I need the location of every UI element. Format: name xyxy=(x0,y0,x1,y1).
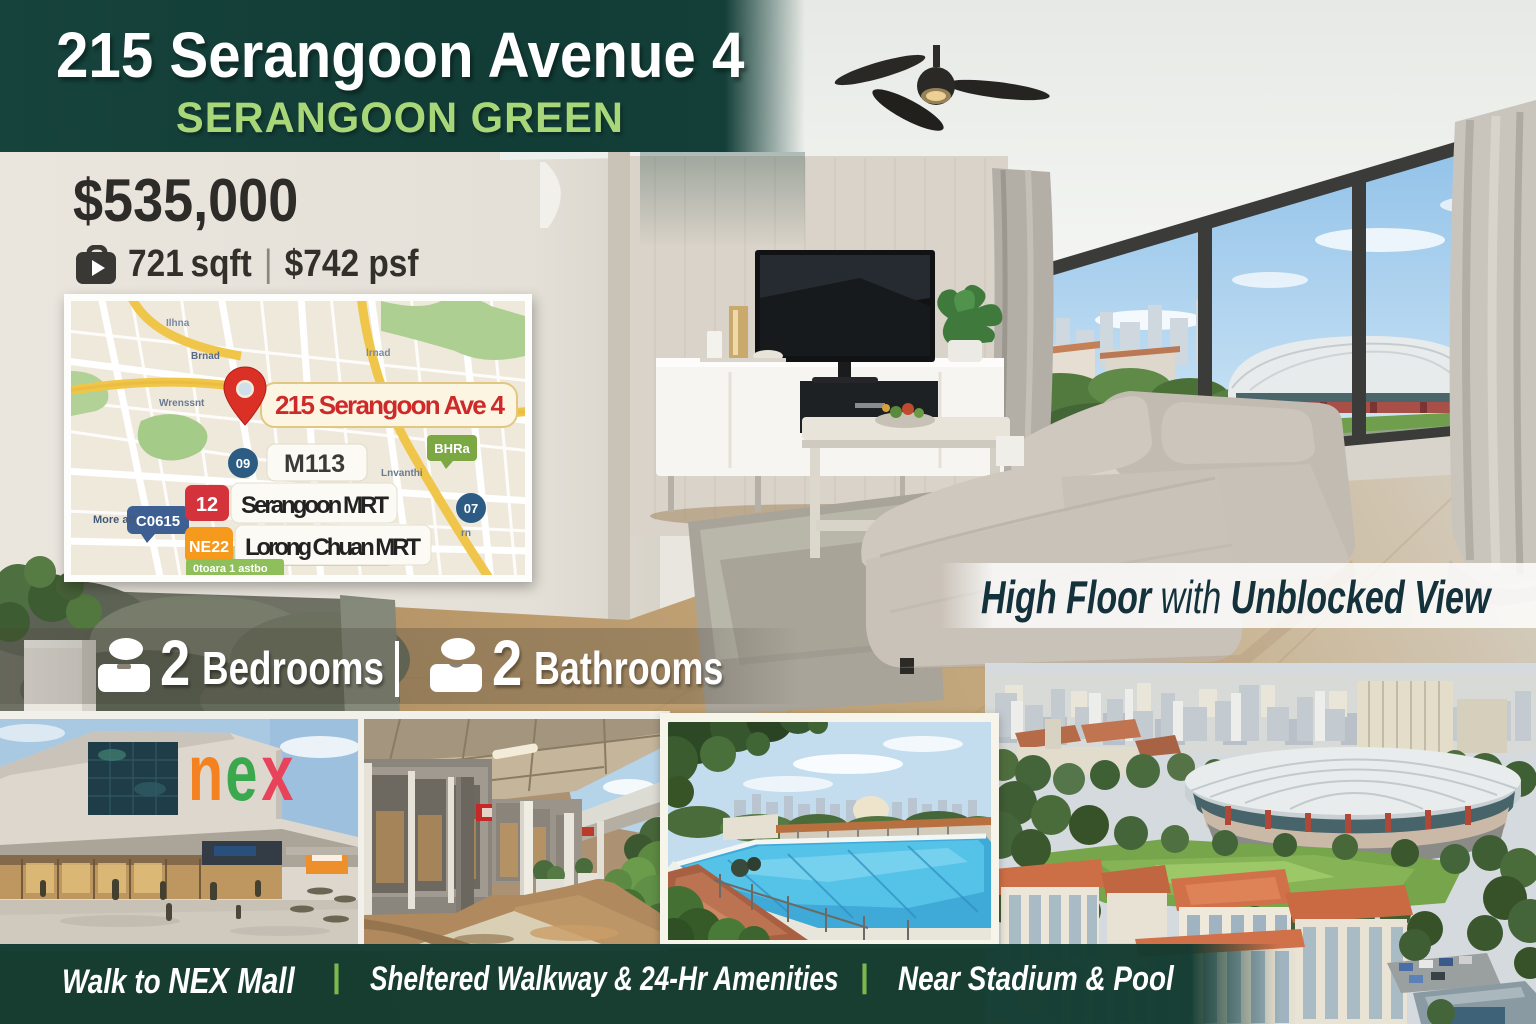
svg-text:0toara 1 astbo: 0toara 1 astbo xyxy=(193,563,268,575)
svg-text:lrnad: lrnad xyxy=(366,348,390,359)
svg-text:Brnad: Brnad xyxy=(191,351,220,362)
svg-text:e: e xyxy=(225,728,257,818)
svg-text:Ilhna: Ilhna xyxy=(166,318,190,329)
svg-text:x: x xyxy=(261,728,293,818)
svg-text:07: 07 xyxy=(464,501,478,516)
svg-text:Wrenssnt: Wrenssnt xyxy=(159,398,205,409)
svg-text:rn: rn xyxy=(461,528,471,539)
svg-text:M113: M113 xyxy=(284,450,345,478)
svg-text:09: 09 xyxy=(236,456,250,471)
svg-text:12: 12 xyxy=(196,494,218,516)
svg-text:BHRa: BHRa xyxy=(434,441,470,456)
svg-text:Lorong Chuan MRT: Lorong Chuan MRT xyxy=(245,534,421,561)
svg-text:Lnvanthi: Lnvanthi xyxy=(381,468,423,479)
svg-text:NE22: NE22 xyxy=(189,539,229,556)
svg-text:C0615: C0615 xyxy=(136,513,180,530)
svg-text:n: n xyxy=(188,728,223,818)
svg-text:215 Serangoon Ave 4: 215 Serangoon Ave 4 xyxy=(275,390,506,420)
svg-text:More aft: More aft xyxy=(93,514,136,526)
svg-text:Serangoon MRT: Serangoon MRT xyxy=(241,492,389,519)
